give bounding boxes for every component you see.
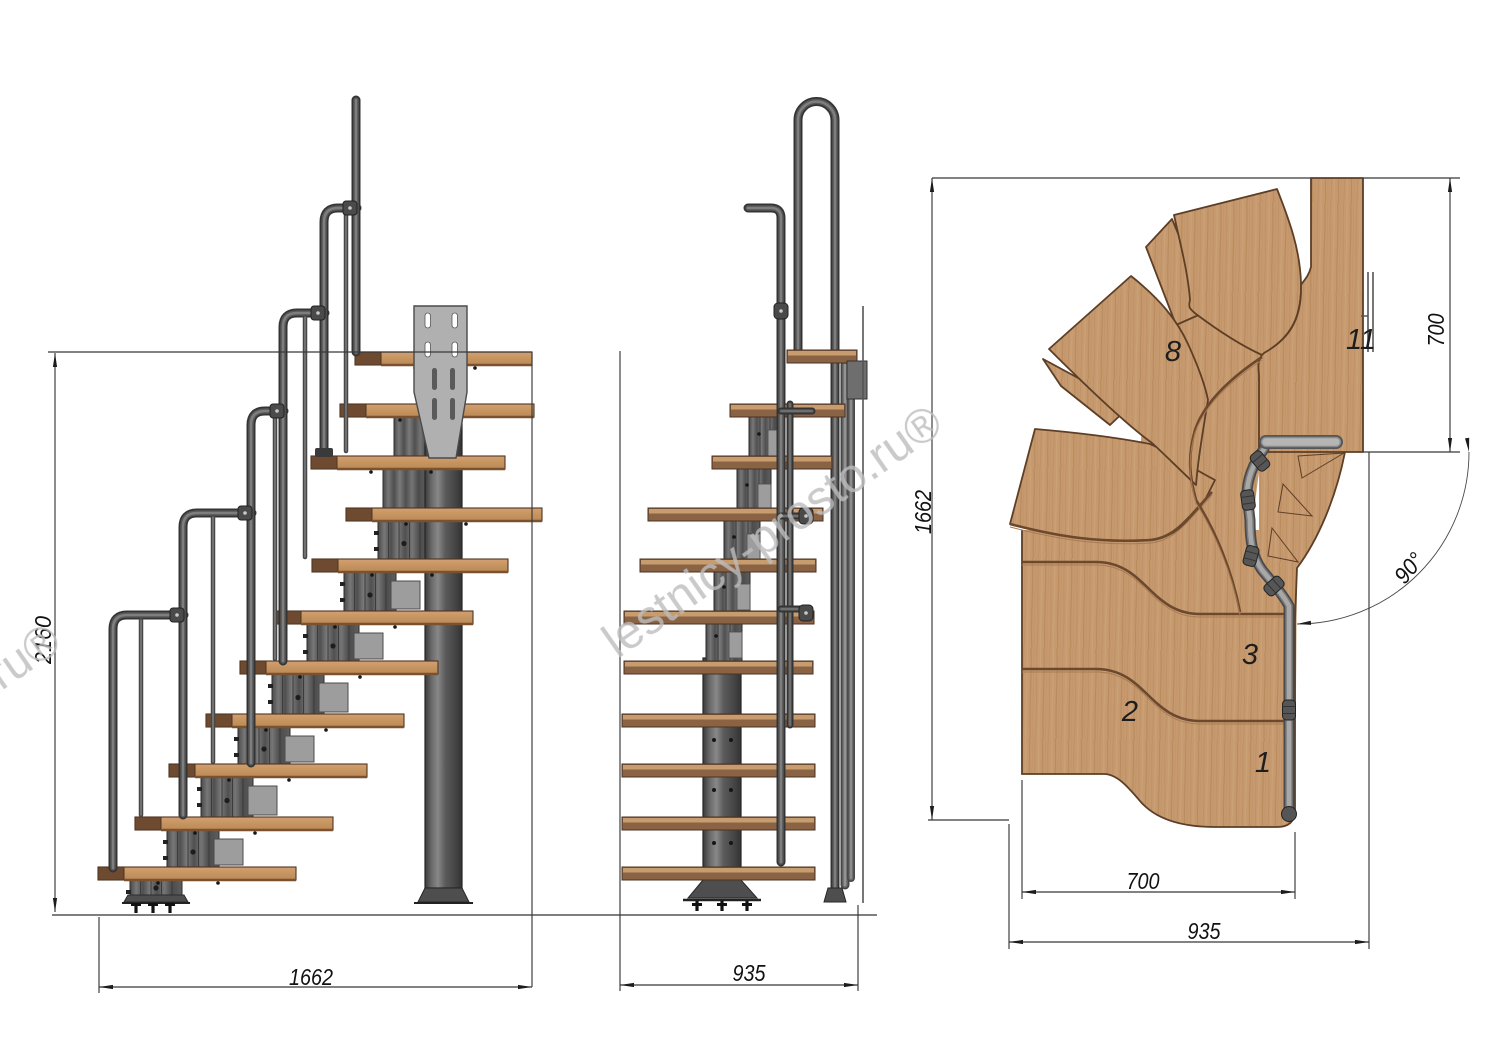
- svg-text:8: 8: [1165, 336, 1181, 368]
- svg-text:935: 935: [1188, 918, 1221, 944]
- svg-text:1662: 1662: [910, 490, 936, 534]
- svg-text:935: 935: [733, 960, 766, 986]
- svg-text:11: 11: [1346, 324, 1376, 356]
- svg-text:1: 1: [1255, 747, 1271, 779]
- svg-text:700: 700: [1423, 313, 1449, 346]
- svg-text:2: 2: [1121, 696, 1138, 728]
- svg-text:3: 3: [1242, 639, 1258, 671]
- svg-text:700: 700: [1127, 868, 1160, 894]
- svg-text:1662: 1662: [289, 964, 333, 990]
